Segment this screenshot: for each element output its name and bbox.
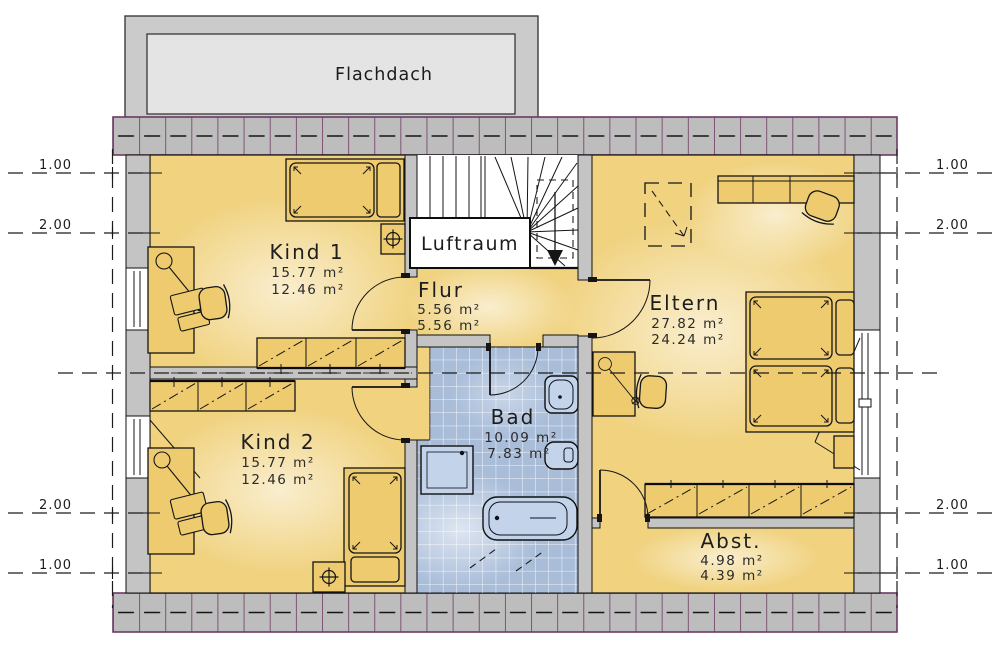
area-bad-gross: 10.09 m² xyxy=(484,430,558,446)
top-eave-hatch xyxy=(113,117,897,155)
label-eltern: Eltern xyxy=(650,291,721,315)
double-bed-eltern xyxy=(746,292,854,432)
floor-plan-drawing: Flachdach xyxy=(0,0,1000,669)
label-kind1: Kind 1 xyxy=(269,240,344,264)
dim-right-2: 2.00 xyxy=(936,218,969,233)
dim-left-4: 1.00 xyxy=(39,558,72,573)
area-kind1-gross: 15.77 m² xyxy=(271,265,345,281)
area-eltern-net: 24.24 m² xyxy=(651,332,725,348)
washbasin xyxy=(545,376,578,413)
label-kind2: Kind 2 xyxy=(240,430,315,454)
label-flur: Flur xyxy=(418,278,464,302)
wardrobe-kind1 xyxy=(257,338,405,374)
flat-roof: Flachdach xyxy=(125,16,538,122)
dim-left-1: 1.00 xyxy=(39,158,72,173)
area-abst-net: 4.39 m² xyxy=(700,568,763,584)
area-kind2-net: 12.46 m² xyxy=(241,472,315,488)
bathtub xyxy=(483,497,577,540)
dim-right-4: 1.00 xyxy=(936,558,969,573)
label-abst: Abst. xyxy=(701,529,762,553)
bed-kind2 xyxy=(344,468,405,586)
floor-plan-canvas: Flachdach xyxy=(0,0,1000,669)
bottom-eave-hatch xyxy=(113,593,897,632)
area-abst-gross: 4.98 m² xyxy=(700,553,763,569)
label-bad: Bad xyxy=(491,405,536,429)
dim-left-2: 2.00 xyxy=(39,218,72,233)
nightstand-kind1 xyxy=(381,224,405,254)
wardrobe-eltern xyxy=(645,480,854,517)
area-flur-net: 5.56 m² xyxy=(417,318,480,334)
area-eltern-gross: 27.82 m² xyxy=(651,316,725,332)
nightstand-eltern xyxy=(834,436,854,468)
area-flur-gross: 5.56 m² xyxy=(417,302,480,318)
area-kind2-gross: 15.77 m² xyxy=(241,455,315,471)
area-kind1-net: 12.46 m² xyxy=(271,282,345,298)
dim-right-3: 2.00 xyxy=(936,498,969,513)
area-bad-net: 7.83 m² xyxy=(487,446,550,462)
shower xyxy=(421,446,473,494)
bed-kind1 xyxy=(286,159,404,221)
wardrobe-kind2 xyxy=(150,377,295,411)
desk-eltern xyxy=(593,352,639,416)
void-label: Luftraum xyxy=(421,233,519,255)
roof-label: Flachdach xyxy=(335,65,433,85)
dim-left-3: 2.00 xyxy=(39,498,72,513)
nightstand-kind2 xyxy=(313,562,345,592)
dim-right-1: 1.00 xyxy=(936,158,969,173)
